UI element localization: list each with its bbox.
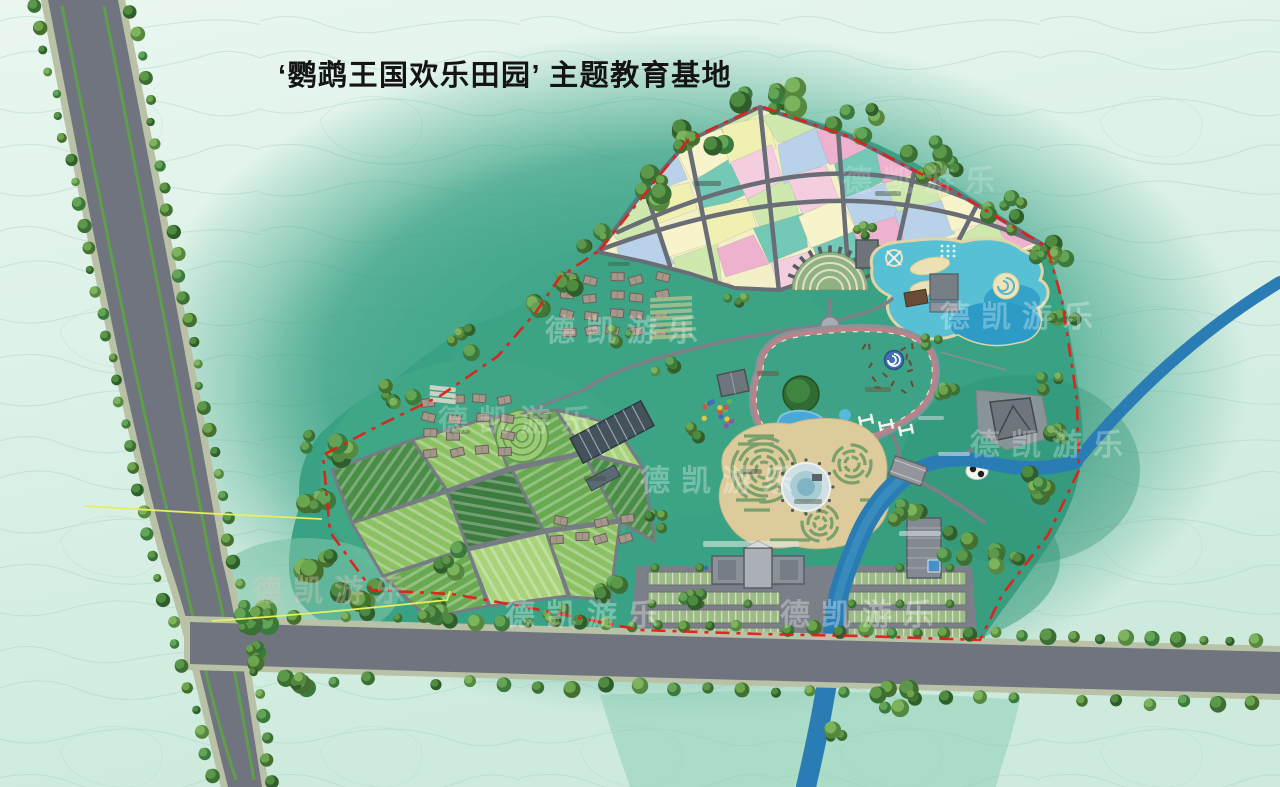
village-house [501,430,515,440]
village-house [472,394,486,403]
illegible-label [875,191,901,196]
illegible-label [794,499,822,504]
illegible-label [757,371,779,376]
illegible-label [527,414,551,419]
village-house [475,445,489,454]
masterplan-canvas [0,0,1280,787]
play-ball [727,399,732,404]
flag-dot [704,566,708,570]
map-title: ‘鹦鹉王国欢乐田园’ 主题教育基地 [278,52,732,94]
illegible-label [703,541,799,547]
village-house [500,414,514,424]
play-ball [729,419,734,424]
illegible-label [695,181,721,186]
plaza-stage [812,474,822,481]
plaza-stall [828,246,832,253]
illegible-label [865,387,891,392]
illegible-label [938,452,970,456]
village-house [583,294,597,303]
village-house [610,309,624,318]
village-house [423,449,437,459]
play-ball [718,414,723,419]
village-house [448,415,462,424]
village-house [611,291,624,299]
village-house [584,312,598,321]
play-ball [702,404,707,409]
illegible-label [584,476,606,481]
village-house [629,293,643,302]
village-house [563,328,576,336]
village-house [611,272,624,280]
play-ball [702,416,707,421]
service-hut [717,369,749,396]
play-ball [724,416,729,421]
site-masterplan-map: ‘鹦鹉王国欢乐田园’ 主题教育基地 德凯游乐德凯游乐德凯游乐德凯游乐德凯游乐德凯… [0,0,1280,787]
village-house [476,413,490,422]
illegible-label [608,262,630,266]
play-ball [717,405,722,410]
village-house [620,514,634,524]
village-house [424,429,437,437]
village-house [498,447,511,456]
north-building [930,274,958,312]
play-ball [707,401,712,406]
play-ball [724,423,729,428]
village-house [550,535,564,544]
swirl-island [993,273,1019,299]
illegible-label [740,469,762,474]
village-house [576,532,589,540]
village-house [629,310,643,320]
east-building [907,518,941,578]
illegible-label [918,416,944,420]
illegible-label [450,430,470,434]
pool-square [928,560,940,572]
play-ball [723,405,728,410]
illegible-label [899,531,941,536]
village-house [554,516,568,526]
